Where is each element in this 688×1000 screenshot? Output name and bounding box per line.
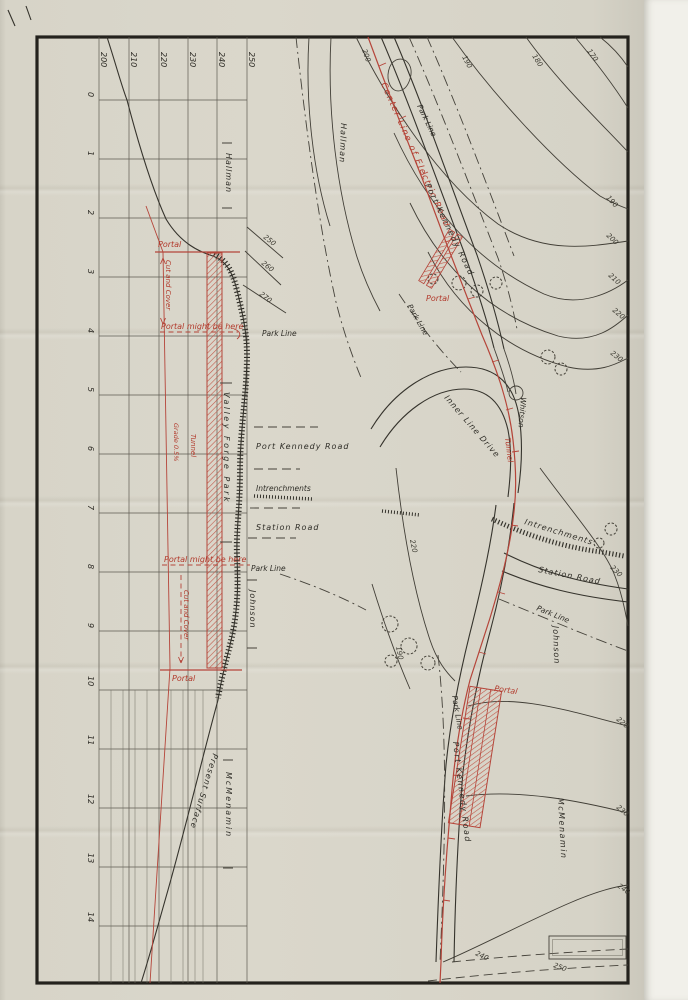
valley-forge-park-label: Valley Forge Park (222, 392, 231, 504)
contour-label: 230 (609, 564, 624, 579)
park-line-label: Park Line (405, 303, 430, 338)
station-label: 2 (86, 210, 95, 215)
sheet-border (8, 6, 628, 983)
station-label: 5 (86, 387, 95, 392)
scanned-survey-sheet: 200 210 220 230 240 250 0 1 2 3 4 5 6 7 … (0, 0, 688, 1000)
contour-label: 220 (611, 306, 627, 321)
grade-label: Grade 0.5% (172, 423, 180, 461)
tunnel-label: Tunnel (503, 437, 515, 464)
portal-label: Portal (426, 294, 450, 303)
station-label: 6 (86, 446, 95, 451)
owner-mcmenamin-label: McMenamin (224, 772, 233, 838)
elevation-label: 220 (159, 52, 168, 67)
present-surface-label: Present Surface (188, 752, 220, 830)
station-label: 13 (86, 853, 95, 863)
contour-label: 170 (585, 48, 600, 64)
profile-feature-lines (248, 427, 366, 610)
owner-mcmenamin-label: McMenamin (556, 798, 568, 860)
owner-johnson-label: Johnson (248, 588, 257, 629)
plan-contour-labels: 200 190 180 170 250 260 270 190 200 210 … (258, 48, 632, 974)
station-label: 14 (86, 912, 95, 922)
station-label: 7 (86, 505, 95, 511)
contour-label: 210 (607, 272, 623, 287)
port-kennedy-road-label: Port Kennedy Road (256, 442, 349, 451)
portal-label: Portal (172, 674, 196, 683)
contour-label: 190 (605, 194, 620, 210)
contour-label: 220 (408, 539, 419, 554)
tunnel-label: Tunnel (189, 434, 197, 457)
drawing-canvas: 200 210 220 230 240 250 0 1 2 3 4 5 6 7 … (0, 0, 688, 1000)
intrenchments-label: Intrenchments (256, 484, 311, 493)
contour-label: 250 (262, 233, 278, 248)
contour-label: 200 (360, 48, 372, 64)
tree-symbols (382, 274, 617, 670)
station-label: 3 (86, 269, 95, 274)
elevation-label: 250 (247, 52, 256, 67)
contour-label: 180 (530, 53, 544, 69)
station-label: 4 (86, 328, 95, 333)
plan-contour-lines (243, 37, 628, 981)
contour-label: 190 (394, 646, 405, 661)
owner-hallman-label: Hallman (338, 123, 348, 163)
owner-johnson-label: Johnson (551, 624, 561, 665)
station-road-label: Station Road (538, 565, 602, 586)
owner-hallman-label: Hallman (224, 153, 233, 193)
profile-elevation-labels: 200 210 220 230 240 250 (99, 52, 256, 67)
portal-label: Portal (158, 240, 182, 249)
inner-line-drive-label: Inner Line Drive (442, 393, 501, 459)
park-line-label: Park Line (262, 329, 297, 338)
station-label: 0 (86, 92, 95, 97)
contour-label: 240 (474, 950, 490, 963)
elevation-label: 200 (99, 52, 108, 67)
portal-might-be-here-label: Portal might be here (161, 322, 243, 331)
contour-label: 230 (609, 349, 625, 364)
station-label: 10 (86, 676, 95, 686)
station-label: 11 (86, 735, 95, 745)
park-line-label: Park Line (251, 564, 286, 573)
cut-and-cover-label: Cut and Cover (164, 260, 172, 311)
plan-center-line-red (368, 37, 519, 983)
station-road-label: Station Road (256, 523, 319, 532)
elevation-label: 210 (129, 52, 138, 67)
contour-label: 250 (552, 961, 568, 973)
elevation-label: 240 (217, 52, 226, 67)
park-line-label: Park Line (450, 695, 465, 731)
owner-whitson-label: Whitson (516, 397, 528, 428)
cut-and-cover-label: Cut and Cover (182, 590, 190, 641)
station-label: 12 (86, 794, 95, 804)
portal-might-be-here-label: Portal might be here (164, 555, 246, 564)
contour-label: 200 (605, 232, 621, 247)
elevation-label: 230 (188, 52, 197, 67)
intrenchments-label: Intrenchments (523, 517, 594, 546)
station-label: 9 (86, 623, 95, 628)
contour-label: 190 (460, 54, 474, 70)
station-label: 1 (86, 151, 95, 156)
corner-stamp-box (549, 936, 626, 959)
profile-station-labels: 0 1 2 3 4 5 6 7 8 9 10 11 12 13 14 (86, 92, 95, 922)
station-label: 8 (86, 564, 95, 569)
